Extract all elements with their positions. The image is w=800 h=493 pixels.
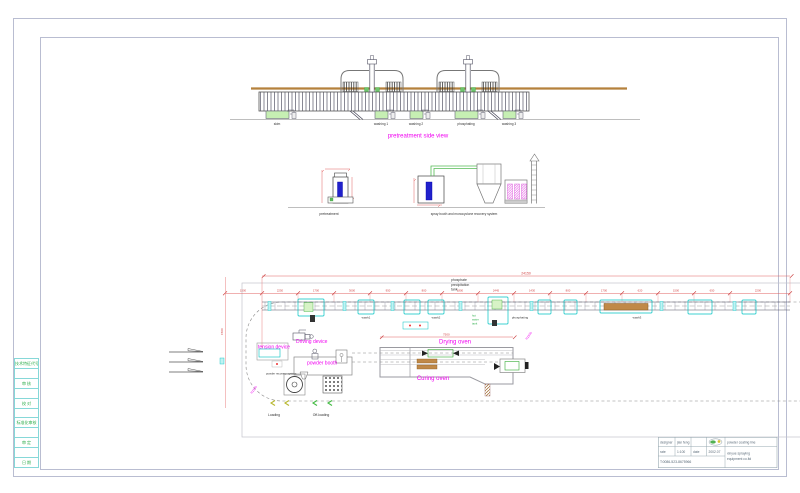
plan-tanks xyxy=(298,297,756,324)
dim-value: 620 xyxy=(638,288,643,292)
title-block: designer jian feng rate 1:100 date 2002.… xyxy=(658,437,777,467)
dim-value: 800 xyxy=(566,288,571,292)
radius-label: R1500 xyxy=(525,331,534,341)
elevation-views: pretreatment spray booth and monocyclone… xyxy=(288,154,545,216)
dim-value: 650 xyxy=(710,288,715,292)
dim-value: 2250 xyxy=(277,288,284,292)
cad-drawing: skim washing 1 washing 2 phosphating was… xyxy=(0,0,800,493)
drawing-sheet: 技术特征代号 审 核 校 对 标准化审核 审 定 日 期 xyxy=(0,0,800,493)
curing-oven-label: Curing oven xyxy=(417,376,449,382)
product-name: powder coating line xyxy=(727,441,756,445)
operator-icon xyxy=(313,349,317,353)
side-view-title: pretreatment side view xyxy=(388,134,449,140)
dim-value: 1700 xyxy=(601,288,608,292)
plan-tank-label: phosphating xyxy=(512,316,529,320)
cyclone-body xyxy=(477,164,501,184)
designer-label: designer xyxy=(660,441,674,445)
rate-value: 1:100 xyxy=(677,450,685,454)
phosphating-bath xyxy=(604,304,648,311)
support-struts xyxy=(350,111,501,120)
loading-label: Loading xyxy=(268,413,280,417)
phosphate-note: phosphate xyxy=(451,278,467,282)
dim-value: 2200 xyxy=(755,288,762,292)
phosphate-note: tank xyxy=(451,288,458,292)
exhaust-stack xyxy=(530,154,539,204)
pretreatment-label: pretreatment xyxy=(319,212,338,216)
dim-value: 950 xyxy=(386,288,391,292)
driving-device-label: Driving device xyxy=(296,339,328,345)
pretreatment-side-view: skim washing 1 washing 2 phosphating was… xyxy=(230,56,640,140)
powder-recovery-label: powder recovery system xyxy=(266,372,297,376)
designer-value: jian feng xyxy=(676,441,690,445)
burner-stack xyxy=(485,384,490,396)
pump-unit xyxy=(341,56,403,93)
dim-value: 1700 xyxy=(313,288,320,292)
filter-grid xyxy=(323,376,342,393)
dim-value: 2445 xyxy=(493,288,500,292)
powder-booth-label: powder booth xyxy=(307,361,338,367)
phosphate-note: precipitation xyxy=(451,283,469,287)
conveyor-run xyxy=(262,302,790,310)
dim-value: 1500 xyxy=(240,288,247,292)
date-label: date xyxy=(693,450,700,454)
company-name: xinyue spraying xyxy=(727,452,750,456)
tank-label: skim xyxy=(274,122,281,126)
oven-dimension: 7500 xyxy=(443,332,450,336)
booth-opening xyxy=(338,182,343,197)
plan-tank-label: wash2 xyxy=(432,316,441,320)
company-name: equipment co.ltd xyxy=(727,457,751,461)
pump-unit xyxy=(437,56,499,93)
plan-tank-label: wash1 xyxy=(362,316,371,320)
dim-value: 1800 xyxy=(457,288,464,292)
radius-label: R1500 xyxy=(250,385,259,395)
conveyor-bar xyxy=(259,92,529,111)
tank-label: washing 1 xyxy=(374,122,389,126)
drying-oven-label: Drying oven xyxy=(439,340,471,346)
powder-recovery-system xyxy=(284,374,342,395)
cyclone-cone xyxy=(477,184,501,203)
rate-label: rate xyxy=(660,450,666,454)
date-value: 2002.07 xyxy=(709,450,721,454)
legend-box xyxy=(403,322,428,329)
left-dimension: 1500 xyxy=(220,328,224,335)
spray-system-label: spray booth and monocyclone recovery sys… xyxy=(431,212,498,216)
tension-device-label: tension device xyxy=(258,345,290,351)
flow-arrow-icon xyxy=(169,359,203,363)
total-dimension: 24150 xyxy=(521,272,531,276)
flow-arrow-icon xyxy=(169,349,203,353)
dim-value: 1430 xyxy=(529,288,536,292)
tank-label: washing 3 xyxy=(502,122,517,126)
powder-hopper xyxy=(300,372,308,379)
pump-marker xyxy=(492,320,497,326)
dim-value: 800 xyxy=(422,288,427,292)
off-loading-label: Off-loading xyxy=(313,413,330,417)
hot-water-note: tank xyxy=(472,322,478,326)
dim-value: 1500 xyxy=(673,288,680,292)
pump-marker xyxy=(310,315,315,322)
dim-value: 3000 xyxy=(349,288,356,292)
tank-label: phosphating xyxy=(457,122,475,126)
phone-number: T:0086-523-8675966 xyxy=(660,460,691,464)
recovery-fan xyxy=(287,377,303,393)
plan-tank-label: wash3 xyxy=(633,316,642,320)
pretreatment-elevation xyxy=(322,169,354,203)
flow-arrow-icon xyxy=(169,369,203,373)
spray-recovery-elevation xyxy=(414,154,539,207)
burner-unit xyxy=(500,359,525,373)
tank-label: washing 2 xyxy=(409,122,424,126)
plan-view: 24150 1500 2250 1700 3000 950 800 1800 2… xyxy=(169,272,800,438)
